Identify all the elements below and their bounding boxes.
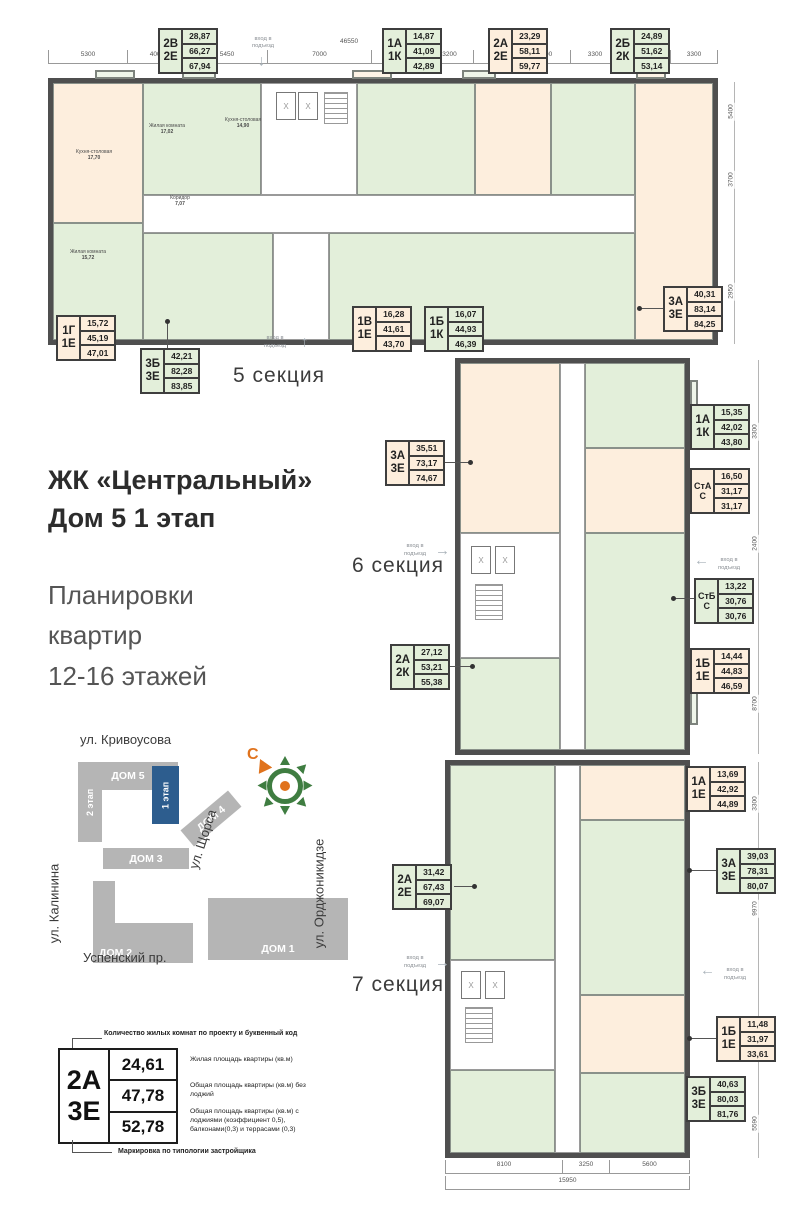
apartment-info-box: 2А2Е 31,4267,4369,07: [392, 864, 452, 910]
apartment-area-orange: [460, 363, 560, 533]
leader-dot: [165, 319, 170, 324]
compass-ray: [258, 781, 267, 791]
apartment-info-box: СтБС 13,2230,7630,76: [694, 578, 754, 624]
legend-code-top: 2А: [67, 1065, 102, 1096]
apartment-info-box: 1А1К 14,8741,0942,89: [382, 28, 442, 74]
dimension-label: 5300: [48, 50, 127, 64]
apartment-area-green: [357, 83, 475, 195]
dimension-label: 3300: [752, 794, 759, 812]
title-line-2: Дом 5 1 этап: [48, 500, 312, 538]
leader-dot: [637, 306, 642, 311]
leader-line: [690, 870, 716, 871]
apartment-info-box: 1Б1Е 11,4831,9733,61: [716, 1016, 776, 1062]
legend-value-total: 47,78: [110, 1081, 176, 1112]
dimension-label: 5400: [728, 102, 735, 120]
room-label: Кухня-столовая14,90: [208, 118, 278, 130]
apartment-area-orange: [585, 448, 685, 533]
subtitle: Планировки квартир 12-16 этажей: [48, 575, 207, 696]
arrow-left-icon: →: [700, 966, 715, 983]
apartment-info-box: 2В2Е 28,8766,2767,94: [158, 28, 218, 74]
section-7-label: 7 секция: [352, 973, 444, 997]
arrow-right-icon: →: [435, 954, 450, 971]
corridor: [560, 363, 585, 750]
apartment-area-green: [580, 820, 685, 995]
entrance-marker: → вход в подъезд: [694, 556, 746, 573]
dimension-label: 5590: [752, 1114, 759, 1132]
title-line-1: ЖК «Центральный»: [48, 462, 312, 500]
project-title: ЖК «Центральный» Дом 5 1 этап: [48, 462, 312, 538]
dimension-label: 3700: [728, 170, 735, 188]
leader-dot: [472, 884, 477, 889]
elevator-icon: X: [461, 971, 481, 999]
legend-code-bottom: 3Е: [67, 1096, 100, 1127]
corridor: [143, 195, 635, 233]
leader-dot: [470, 664, 475, 669]
dimension-label: 3250: [562, 1160, 609, 1174]
section-5-plan: X X: [48, 78, 718, 345]
bottom-dimension-row: 8100 3250 5600: [445, 1160, 690, 1174]
dimension-label: 5600: [609, 1160, 690, 1174]
leader-dot: [687, 868, 692, 873]
building-dom1: ДОМ 1: [208, 898, 348, 960]
compass-ray: [296, 761, 309, 774]
stairs-icon: [324, 92, 348, 124]
legend-connector: [72, 1140, 73, 1152]
legend-row2-label: Общая площадь квартиры (кв.м) без лоджий: [190, 1082, 318, 1100]
elevator-icon: X: [485, 971, 505, 999]
dimension-label: 8100: [445, 1160, 562, 1174]
apartment-area-orange: [475, 83, 551, 195]
apartment-info-box: 1Б1К 16,0744,9346,39: [424, 306, 484, 352]
apartment-area-green: [143, 83, 261, 195]
dimension-line: [734, 82, 735, 344]
elevator-icon: X: [471, 546, 491, 574]
dimension-label: 9970: [752, 899, 759, 917]
apartment-info-box: 2А2К 27,1253,2155,38: [390, 644, 450, 690]
street-ordzhonikidze: ул. Орджоникидзе: [311, 839, 326, 949]
room-label: Жилая комната15,72: [56, 250, 120, 262]
site-map: ул. Кривоусова ДОМ 5 2 этап 1 этап ДОМ 4…: [48, 726, 338, 976]
stair-core: X X: [450, 960, 555, 1070]
arrow-right-icon: →: [435, 542, 450, 559]
section-6-plan: X X: [455, 358, 690, 755]
leader-line: [690, 1038, 716, 1039]
room-label: Жилая комната17,02: [135, 124, 199, 136]
apartment-info-box: 1А1Е 13,6942,9244,89: [686, 766, 746, 812]
legend-value-living: 24,61: [110, 1050, 176, 1081]
dimension-label: 2400: [752, 534, 759, 552]
floor-plan-sheet: 5300 4000 5450 7000 3680 3200 3100 3400 …: [0, 0, 800, 1231]
legend-connector: [72, 1038, 102, 1039]
apartment-area-green: [585, 363, 685, 448]
section-5-label: 5 секция: [233, 364, 325, 388]
entrance-marker: вход в подъезд →: [398, 542, 450, 559]
legend-value-total-loggia: 52,78: [110, 1113, 176, 1142]
apartment-area-green: [450, 1070, 555, 1153]
entrance-marker: вход в подъезд →: [398, 954, 450, 971]
leader-line: [640, 308, 663, 309]
apartment-area-orange: [580, 995, 685, 1073]
dimension-line: [758, 762, 759, 1158]
legend-bottom-note: Маркировка по типологии застройщика: [118, 1148, 318, 1155]
apartment-info-box: СтАС 16,5031,1731,17: [690, 468, 750, 514]
street-uspenskiy: Успенский пр.: [83, 950, 167, 965]
building-dom3: ДОМ 3: [103, 848, 189, 869]
loggia: [690, 690, 698, 725]
apartment-area-green: [551, 83, 635, 195]
apartment-info-box: 3Б3Е 40,6380,0381,76: [686, 1076, 746, 1122]
subtitle-line-1: Планировки: [48, 575, 207, 615]
leader-line: [674, 598, 694, 599]
apartment-info-box: 3А3Е 39,0378,3180,07: [716, 848, 776, 894]
section-7-plan: X X: [445, 760, 690, 1158]
leader-line: [167, 322, 168, 348]
street-kalinina: ул. Калинина: [46, 864, 61, 944]
stage-2-block: 2 этап: [78, 762, 102, 842]
apartment-info-box: 3А3Е 35,5173,1774,67: [385, 440, 445, 486]
apartment-info-box: 1Б1Е 14,4444,8346,59: [690, 648, 750, 694]
apartment-info-box: 2Б2К 24,8951,6253,14: [610, 28, 670, 74]
entrance-lobby: [273, 233, 329, 340]
apartment-info-box: 1А1К 15,3542,0243,80: [690, 404, 750, 450]
loggia: [95, 70, 135, 79]
stairs-icon: [465, 1007, 493, 1043]
elevator-icon: X: [276, 92, 296, 120]
legend-row1-label: Жилая площадь квартиры (кв.м): [190, 1056, 318, 1065]
dimension-label: 3300: [670, 50, 718, 64]
overall-dimension-top: 46550: [340, 38, 358, 45]
street-krivousova: ул. Кривоусова: [80, 732, 171, 747]
overall-bottom-dimension: 15950: [445, 1176, 690, 1190]
arrow-up-icon: →: [294, 335, 311, 350]
apartment-info-box: 1Г1Е 15,7245,1947,01: [56, 315, 116, 361]
apartment-area-green: [450, 765, 555, 960]
stair-core: X X: [460, 533, 560, 658]
apartment-info-box: 2А2Е 23,2958,1159,77: [488, 28, 548, 74]
apartment-info-box: 1В1Е 16,2841,6143,70: [352, 306, 412, 352]
dimension-label: 3300: [752, 422, 759, 440]
leader-dot: [468, 460, 473, 465]
compass-north-letter: С: [247, 746, 259, 764]
legend-row3-label: Общая площадь квартиры (кв.м) с лоджиями…: [190, 1108, 318, 1134]
apartment-area-green: [460, 658, 560, 750]
room-label: Коридор7,07: [150, 196, 210, 208]
subtitle-line-3: 12-16 этажей: [48, 656, 207, 696]
entrance-marker: вход в подъезд →: [246, 36, 280, 70]
compass-ray: [296, 797, 309, 810]
apartment-info-box: 3А3Е 40,3183,1484,25: [663, 286, 723, 332]
corridor: [555, 765, 580, 1153]
stairs-icon: [475, 584, 503, 620]
legend-connector: [72, 1038, 73, 1048]
elevator-icon: X: [495, 546, 515, 574]
compass-icon: С: [253, 754, 317, 818]
compass-ray: [304, 781, 313, 791]
legend-sample-box: 2А3Е 24,61 47,78 52,78: [58, 1048, 178, 1144]
leader-line: [454, 886, 474, 887]
dimension-label: 7000: [267, 50, 371, 64]
stage-1-block: 1 этап: [152, 766, 179, 824]
leader-line: [445, 462, 470, 463]
leader-dot: [687, 1036, 692, 1041]
subtitle-line-2: квартир: [48, 615, 207, 655]
entrance-marker: → вход в подъезд: [700, 966, 752, 983]
room-label: Кухня-столовая17,70: [55, 150, 133, 162]
apartment-area-green: [585, 533, 685, 750]
stair-core: X X: [261, 83, 357, 195]
elevator-icon: X: [298, 92, 318, 120]
arrow-down-icon: →: [255, 54, 272, 69]
legend-top-note: Количество жилых комнат по проекту и бук…: [104, 1030, 319, 1037]
leader-line: [450, 666, 472, 667]
apartment-area-orange: [580, 765, 685, 820]
apartment-info-box: 3Б3Е 42,2182,2883,85: [140, 348, 200, 394]
dimension-label: 8700: [752, 694, 759, 712]
dimension-label: 15950: [445, 1176, 690, 1190]
arrow-left-icon: →: [694, 556, 709, 573]
compass-ray: [280, 756, 290, 765]
dimension-label: 2950: [728, 282, 735, 300]
apartment-area-green: [143, 233, 273, 340]
compass-center-dot: [280, 781, 290, 791]
leader-dot: [671, 596, 676, 601]
compass-ray: [280, 806, 290, 815]
entrance-marker: вход в подъезд →: [258, 334, 310, 351]
apartment-area-green: [580, 1073, 685, 1153]
legend-connector: [72, 1152, 112, 1153]
